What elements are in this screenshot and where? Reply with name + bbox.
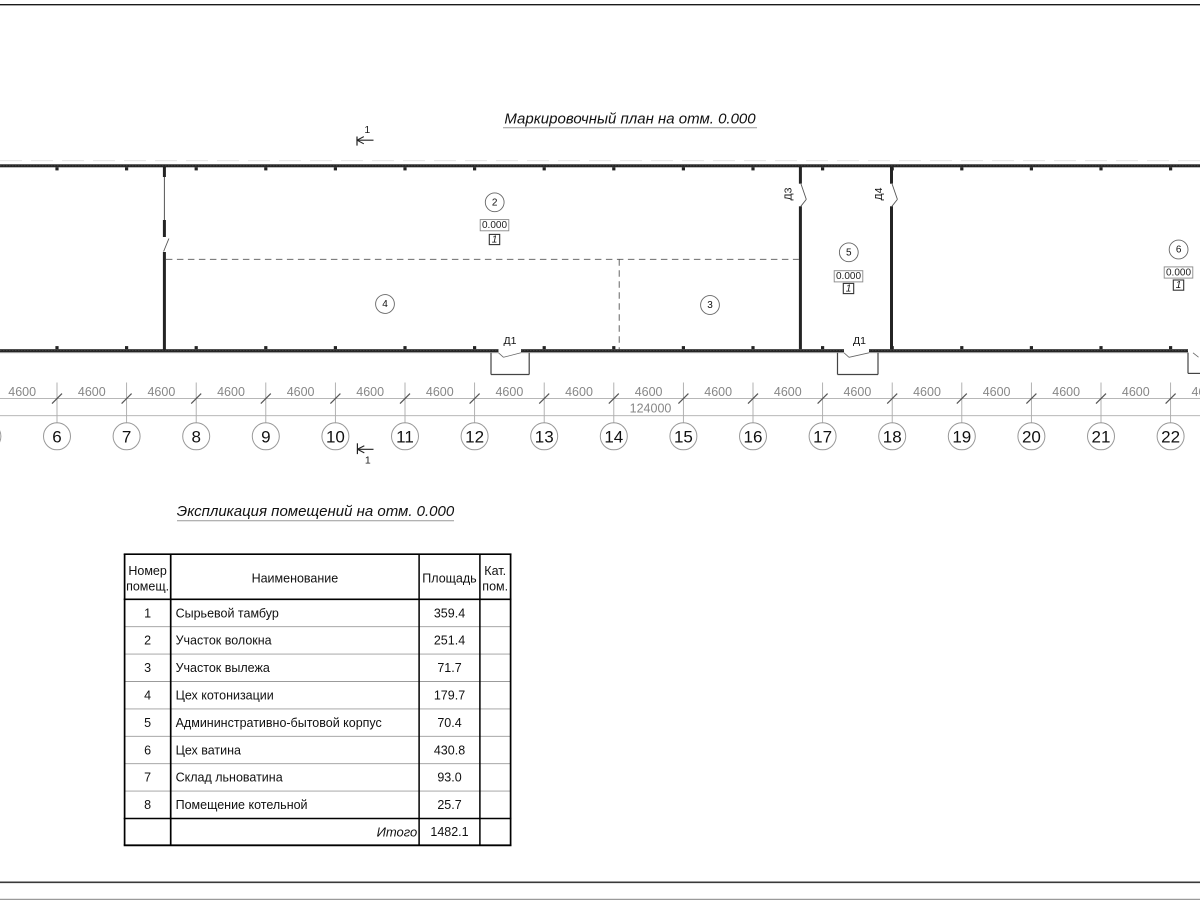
svg-text:Д4: Д4 [873, 187, 885, 200]
svg-text:Итого: Итого [377, 825, 418, 840]
svg-text:Склад льноватина: Склад льноватина [176, 771, 283, 785]
svg-text:21: 21 [1092, 427, 1111, 446]
svg-text:4600: 4600 [704, 385, 732, 399]
svg-text:4600: 4600 [78, 385, 106, 399]
svg-text:4600: 4600 [565, 385, 593, 399]
svg-text:15: 15 [674, 427, 693, 446]
svg-text:2: 2 [492, 197, 498, 208]
svg-text:1482.1: 1482.1 [430, 825, 468, 839]
svg-text:124000: 124000 [630, 402, 672, 416]
svg-text:Д1: Д1 [853, 335, 866, 347]
svg-text:4600: 4600 [147, 385, 175, 399]
svg-text:4600: 4600 [774, 385, 802, 399]
svg-text:179.7: 179.7 [434, 689, 465, 703]
svg-text:14: 14 [604, 427, 623, 446]
svg-text:359.4: 359.4 [434, 606, 465, 620]
svg-text:Наименование: Наименование [252, 571, 339, 585]
svg-text:7: 7 [122, 427, 131, 446]
svg-text:4600: 4600 [426, 385, 454, 399]
svg-text:4600: 4600 [1191, 385, 1200, 399]
svg-text:2: 2 [144, 634, 151, 648]
svg-text:1: 1 [1176, 280, 1182, 291]
svg-text:Маркировочный план на отм. 0.0: Маркировочный план на отм. 0.000 [504, 111, 756, 128]
svg-text:6: 6 [144, 743, 151, 757]
svg-text:4: 4 [382, 299, 388, 310]
svg-text:6: 6 [1176, 245, 1182, 256]
svg-text:19: 19 [952, 427, 971, 446]
svg-text:5: 5 [846, 247, 852, 258]
svg-text:9: 9 [261, 427, 270, 446]
svg-text:4: 4 [144, 689, 151, 703]
svg-text:430.8: 430.8 [434, 743, 465, 757]
svg-text:1: 1 [144, 606, 151, 620]
svg-text:4600: 4600 [287, 385, 315, 399]
svg-text:Д1: Д1 [504, 335, 517, 347]
svg-text:Площадь: Площадь [422, 571, 476, 585]
svg-text:Участок волокна: Участок волокна [176, 634, 272, 648]
svg-text:20: 20 [1022, 427, 1041, 446]
svg-text:4600: 4600 [495, 385, 523, 399]
svg-text:1: 1 [492, 234, 498, 245]
svg-text:Цех котонизации: Цех котонизации [176, 689, 274, 703]
svg-text:Сырьевой тамбур: Сырьевой тамбур [176, 606, 279, 620]
svg-text:17: 17 [813, 427, 832, 446]
svg-text:1: 1 [365, 454, 371, 466]
svg-text:6: 6 [52, 427, 61, 446]
svg-text:4600: 4600 [635, 385, 663, 399]
svg-text:4600: 4600 [1052, 385, 1080, 399]
svg-text:8: 8 [144, 798, 151, 812]
svg-text:10: 10 [326, 427, 345, 446]
svg-text:Цех ватина: Цех ватина [176, 743, 241, 757]
svg-text:3: 3 [144, 661, 151, 675]
svg-text:Помещение котельной: Помещение котельной [176, 798, 308, 812]
svg-text:3: 3 [707, 300, 713, 311]
svg-text:1: 1 [846, 283, 852, 294]
svg-text:0.000: 0.000 [1166, 267, 1191, 278]
svg-text:12: 12 [465, 427, 484, 446]
svg-text:11: 11 [396, 427, 414, 446]
svg-text:0.000: 0.000 [482, 220, 507, 231]
svg-text:Номер: Номер [128, 564, 167, 578]
svg-text:4600: 4600 [8, 385, 36, 399]
svg-text:Д3: Д3 [783, 187, 795, 200]
svg-text:4600: 4600 [913, 385, 941, 399]
svg-text:4600: 4600 [217, 385, 245, 399]
svg-text:4600: 4600 [983, 385, 1011, 399]
svg-text:4600: 4600 [843, 385, 871, 399]
svg-text:Экспликация помещений на отм.: Экспликация помещений на отм. 0.000 [177, 503, 455, 520]
svg-text:25.7: 25.7 [437, 798, 461, 812]
svg-text:7: 7 [144, 771, 151, 785]
svg-text:13: 13 [535, 427, 554, 446]
svg-text:18: 18 [883, 427, 902, 446]
svg-text:Участок вылежа: Участок вылежа [176, 661, 270, 675]
svg-text:70.4: 70.4 [437, 716, 461, 730]
svg-text:71.7: 71.7 [437, 661, 461, 675]
svg-text:1: 1 [364, 124, 370, 136]
svg-text:0.000: 0.000 [836, 271, 861, 282]
svg-text:Кат.: Кат. [484, 564, 506, 578]
svg-text:5: 5 [144, 716, 151, 730]
svg-text:помещ.: помещ. [126, 580, 169, 594]
svg-text:251.4: 251.4 [434, 634, 465, 648]
svg-text:4600: 4600 [1122, 385, 1150, 399]
svg-text:пом.: пом. [482, 580, 508, 594]
svg-text:93.0: 93.0 [437, 771, 461, 785]
svg-text:22: 22 [1161, 427, 1180, 446]
svg-text:16: 16 [744, 427, 763, 446]
svg-text:8: 8 [191, 427, 200, 446]
svg-text:Админинстративно-бытовой корпу: Админинстративно-бытовой корпус [176, 716, 382, 730]
svg-text:4600: 4600 [356, 385, 384, 399]
